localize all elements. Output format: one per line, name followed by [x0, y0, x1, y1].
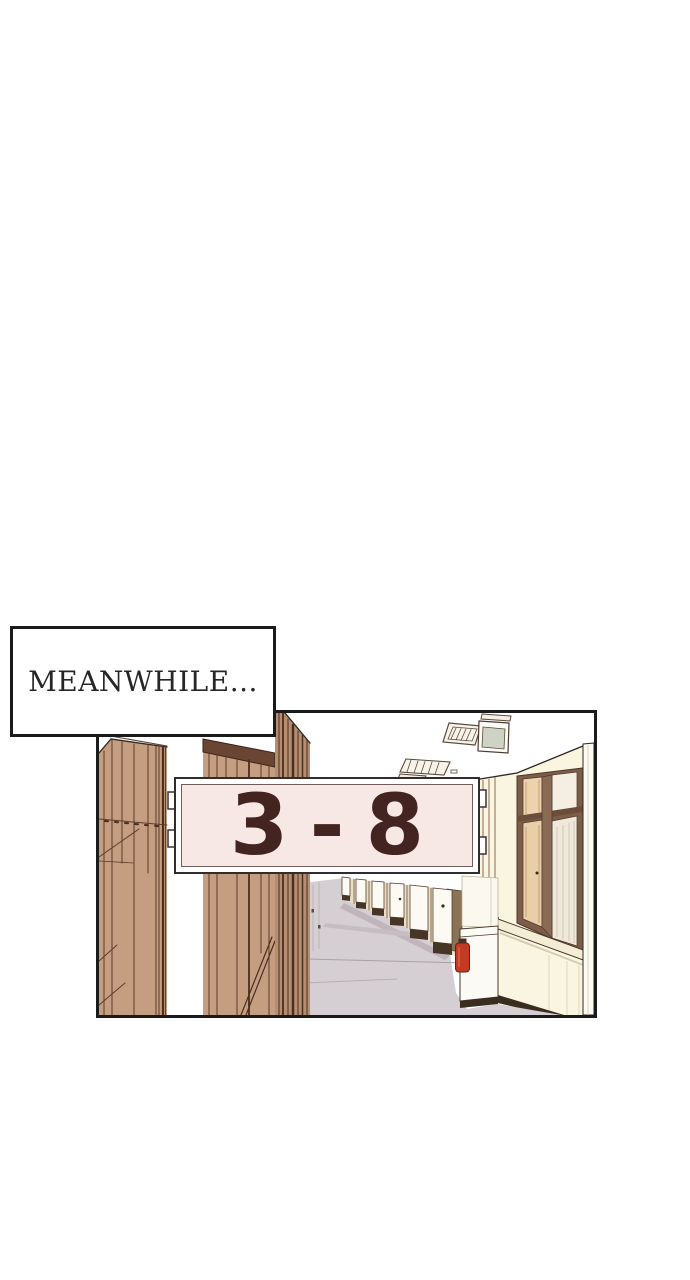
caption-box: MEANWHILE...: [10, 626, 276, 737]
ceiling-lights: [397, 714, 511, 783]
classroom-door-left: [99, 734, 167, 1015]
classroom-sign-text: 3 - 8: [230, 786, 424, 865]
comic-panel: 3 - 8: [96, 710, 597, 1018]
right-pillar: [583, 743, 594, 1015]
caption-text: MEANWHILE...: [28, 665, 258, 698]
classroom-sign-plate: 3 - 8: [181, 784, 473, 867]
hallway-windows: [517, 768, 583, 953]
ceiling-vent: [481, 714, 511, 721]
fire-extinguisher: [456, 939, 470, 973]
webtoon-page: MEANWHILE...: [0, 0, 690, 1280]
tv-monitor: [478, 721, 509, 753]
classroom-sign: 3 - 8: [174, 777, 480, 874]
